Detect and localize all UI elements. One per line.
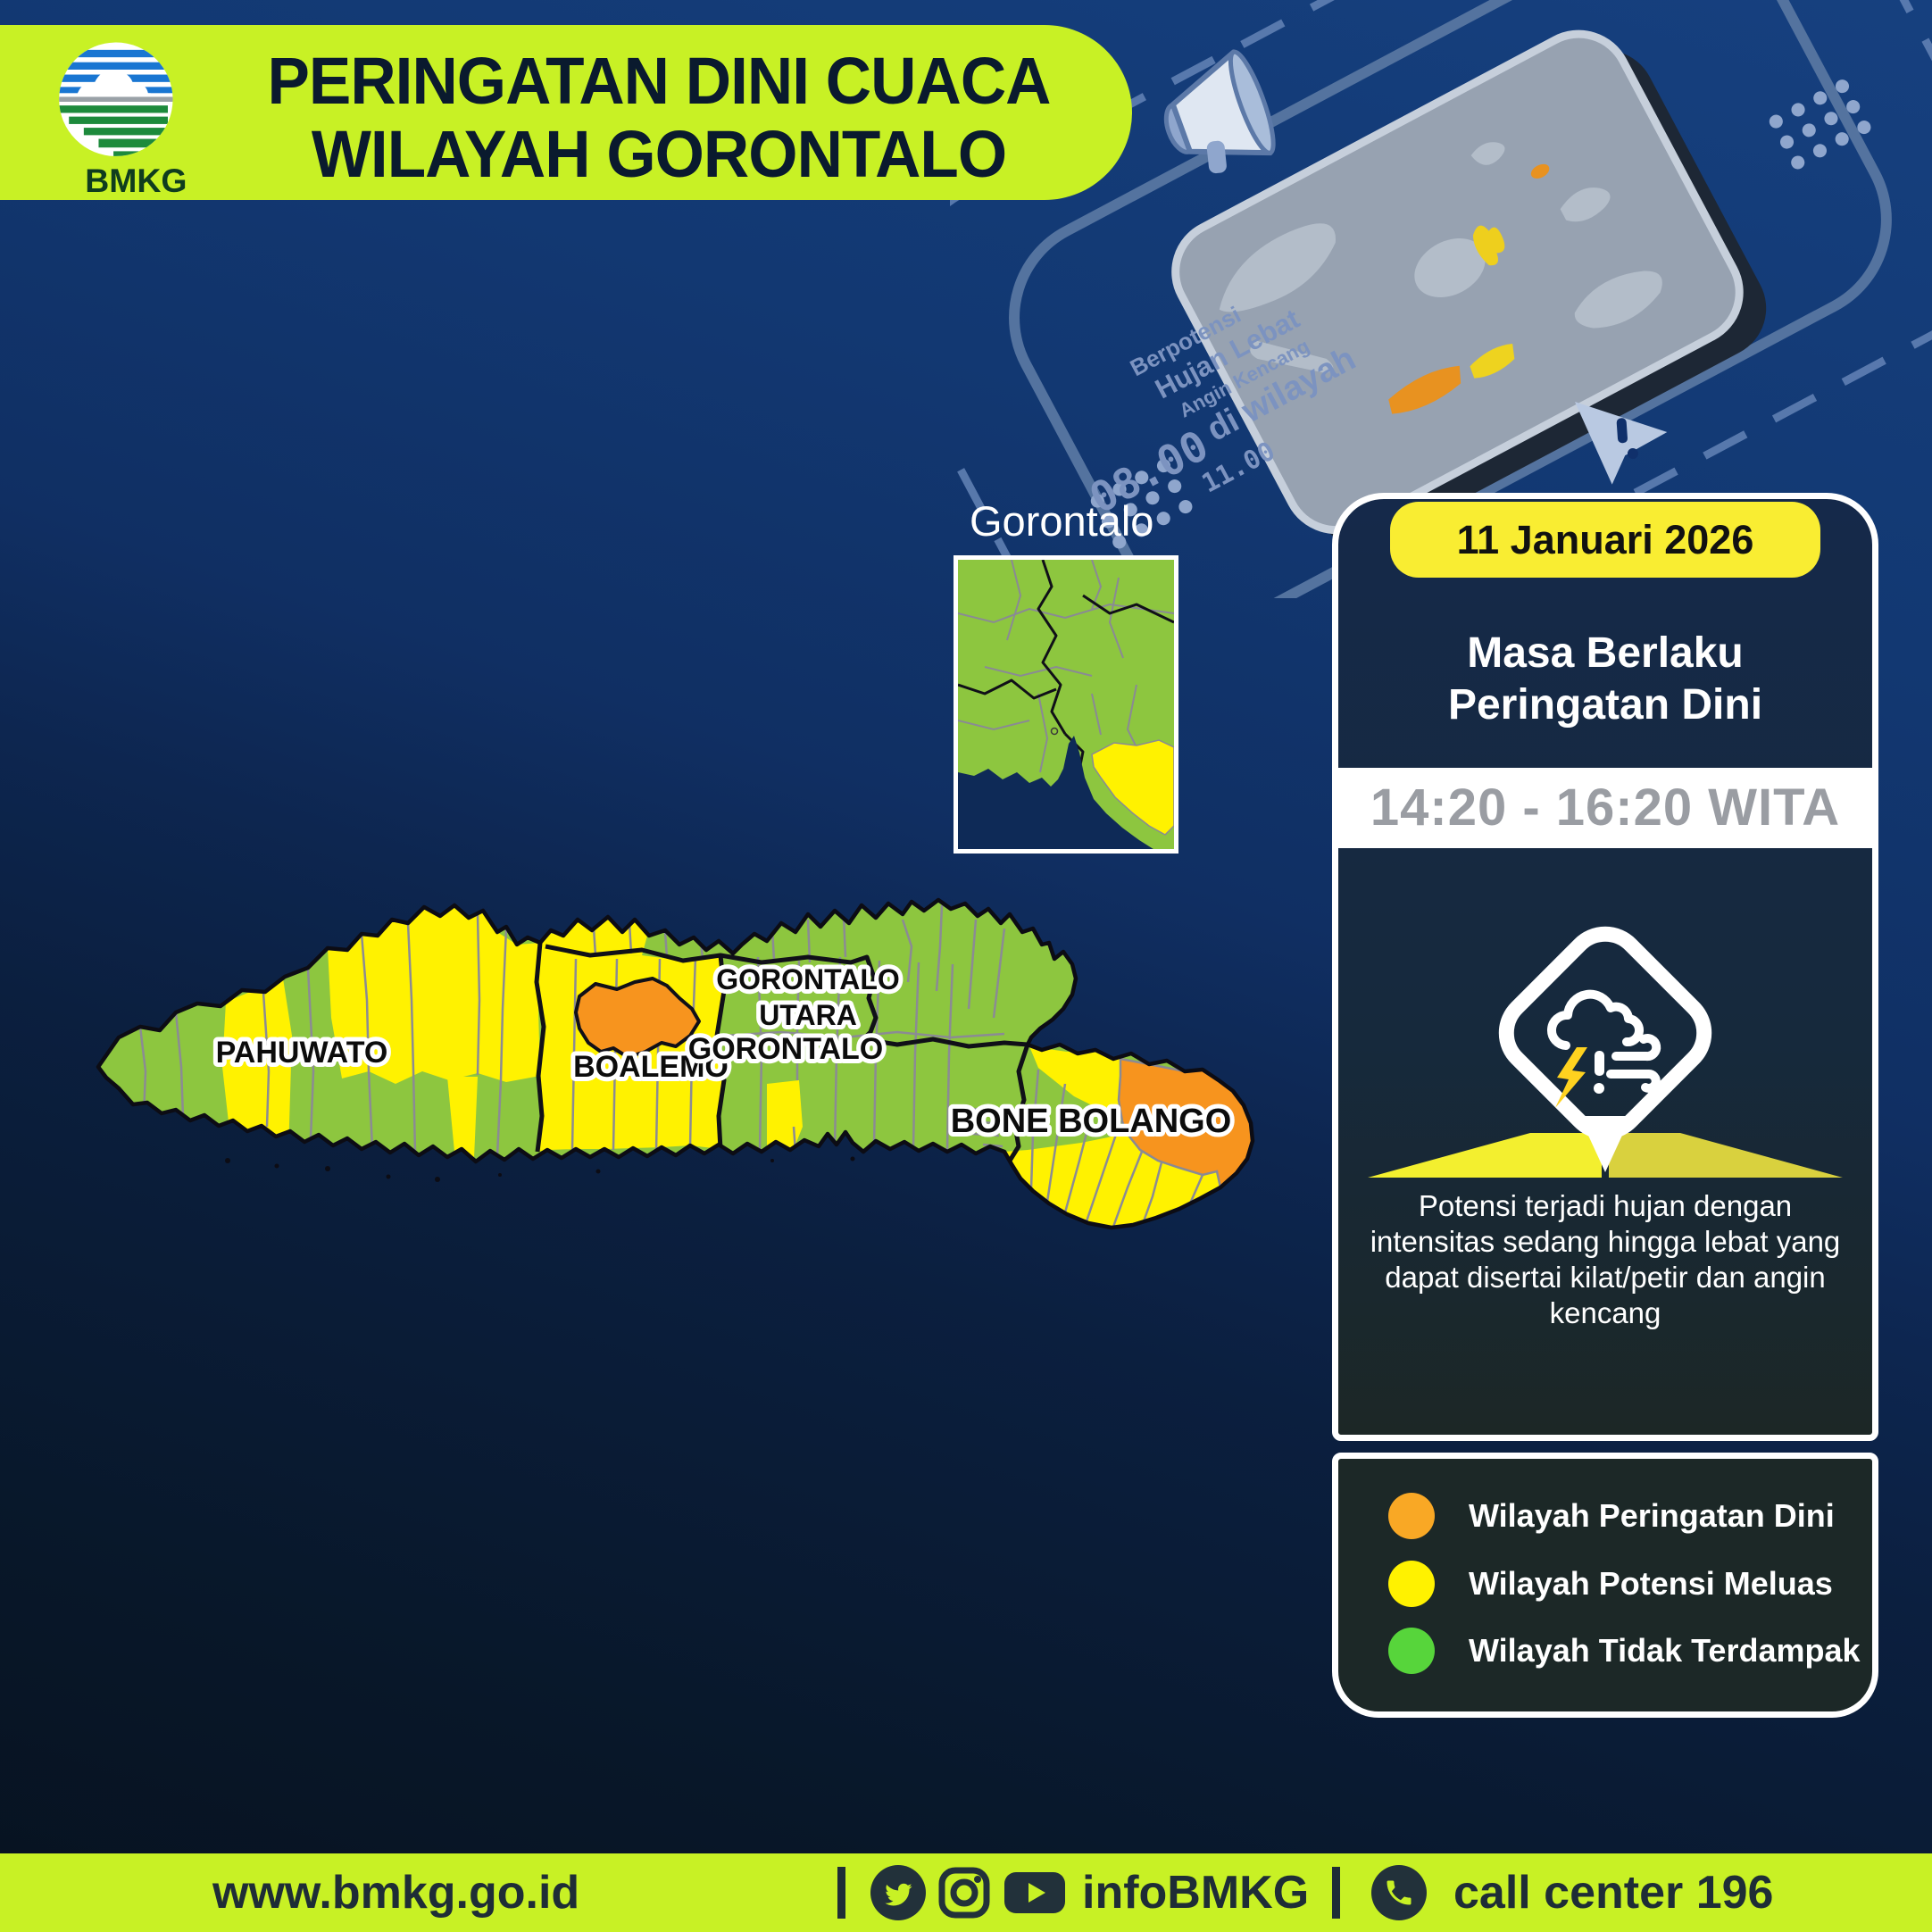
legend-row-warning: Wilayah Peringatan Dini [1388, 1493, 1872, 1539]
label-pahuwato: PAHUWATO [216, 1036, 388, 1070]
inset-map [954, 555, 1178, 854]
legend-card: Wilayah Peringatan Dini Wilayah Potensi … [1332, 1453, 1878, 1718]
megaphone-icon [1151, 48, 1283, 187]
call-center-text: call center 196 [1453, 1866, 1773, 1920]
legend-label: Wilayah Tidak Terdampak [1469, 1632, 1861, 1670]
logo-text: BMKG [85, 162, 187, 198]
time-range: 14:20 - 16:20 WITA [1370, 779, 1840, 837]
gorontalo-province-map: PAHUWATO BOALEMO GORONTALO GORONTALO UTA… [94, 893, 1263, 1237]
storm-warning-icon [1471, 926, 1739, 1185]
inset-map-label: Gorontalo [970, 496, 1153, 545]
legend-row-potential: Wilayah Potensi Meluas [1388, 1561, 1872, 1607]
legend-label: Wilayah Peringatan Dini [1469, 1497, 1835, 1535]
label-gorontalo-utara-line1: GORONTALO [716, 963, 900, 995]
lightning-icon [1555, 1047, 1587, 1108]
website-link: www.bmkg.go.id [212, 1866, 579, 1920]
label-gorontalo-utara-line2: UTARA [759, 999, 857, 1031]
title-line2: WILAYAH GORONTALO [221, 118, 1095, 191]
bmkg-warning-infographic: Berpotensi Hujan Lebat Angin Kencang di … [0, 0, 1932, 1932]
legend-row-unaffected: Wilayah Tidak Terdampak [1388, 1628, 1872, 1674]
pin-diamond [1492, 926, 1720, 1146]
warning-detail-card: 11 Januari 2026 Masa Berlaku Peringatan … [1332, 493, 1878, 1441]
header-banner: BMKG PERINGATAN DINI CUACA WILAYAH GORON… [0, 25, 1132, 200]
phone-icon [1371, 1865, 1427, 1920]
footer-bar: www.bmkg.go.id infoBMKG call center 196 [0, 1853, 1932, 1932]
rain-exclamation-icon [1594, 1051, 1604, 1094]
warning-description: Potensi terjadi hujan dengan intensitas … [1354, 1188, 1856, 1331]
map-islets [225, 1157, 855, 1183]
clock-text: 11.00 [1196, 436, 1279, 499]
date-badge: 11 Januari 2026 [1390, 502, 1820, 578]
logo-horizon [52, 96, 180, 102]
youtube-icon [1003, 1865, 1067, 1920]
legend-label: Wilayah Potensi Meluas [1469, 1565, 1833, 1603]
legend-swatch-orange [1388, 1493, 1435, 1539]
validity-heading: Masa Berlaku Peringatan Dini [1338, 628, 1872, 731]
legend-swatch-yellow [1388, 1561, 1435, 1607]
time-range-band: 14:20 - 16:20 WITA [1338, 768, 1872, 848]
instagram-icon [937, 1865, 992, 1920]
social-handle: infoBMKG [1082, 1866, 1309, 1920]
legend-swatch-green [1388, 1628, 1435, 1674]
label-bone-bolango: BONE BOLANGO [951, 1103, 1232, 1140]
bmkg-logo: BMKG [39, 37, 200, 198]
twitter-icon [870, 1865, 926, 1920]
page-title: PERINGATAN DINI CUACA WILAYAH GORONTALO [221, 45, 1095, 191]
separator [837, 1867, 845, 1919]
validity-line2: Peringatan Dini [1338, 679, 1872, 731]
validity-line1: Masa Berlaku [1338, 628, 1872, 679]
separator [1332, 1867, 1340, 1919]
label-gorontalo: GORONTALO [688, 1032, 883, 1066]
title-line1: PERINGATAN DINI CUACA [221, 45, 1095, 118]
